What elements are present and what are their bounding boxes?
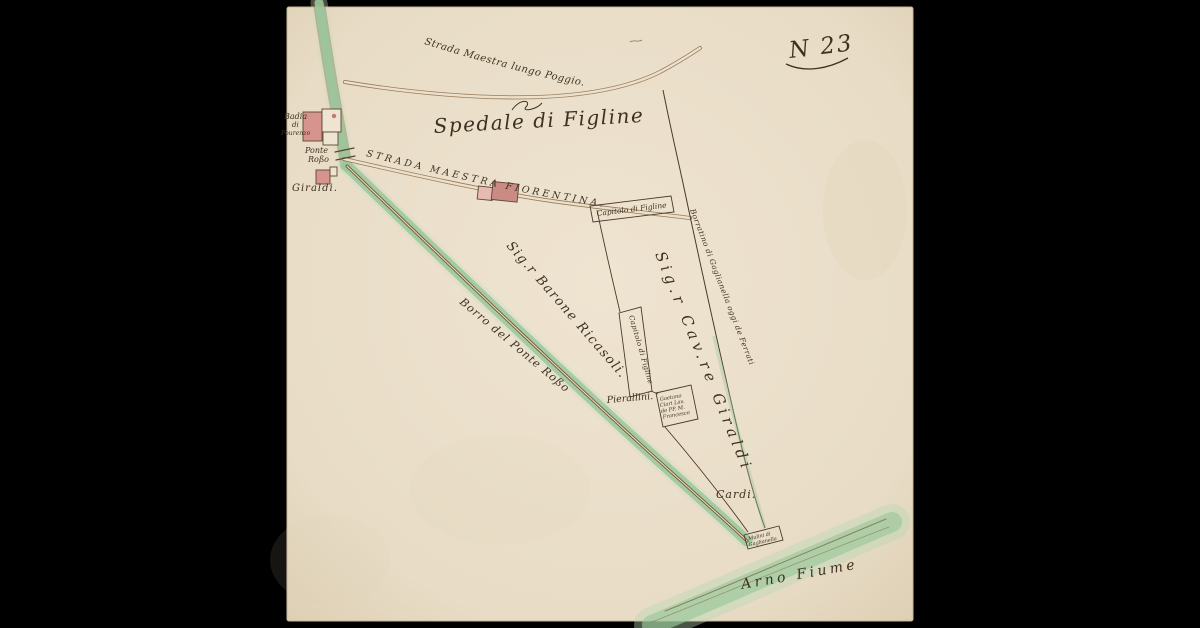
badia-label-line1: Badia	[283, 112, 307, 121]
badia-label-line3: Fourenzo	[280, 130, 311, 137]
badia-buildings	[303, 109, 341, 145]
paper-stain	[270, 515, 390, 605]
screenshot-canvas: N 23 Strada Maestra lungo Poggio. Spedal…	[0, 0, 1200, 628]
paper-stain	[410, 435, 590, 545]
ponte-rosso-line2: Roßo	[307, 155, 329, 164]
giraldi-house-label: Giraldi.	[292, 183, 338, 194]
cardi-label: Cardi.	[716, 488, 756, 501]
paper	[287, 7, 913, 621]
map-sheet	[270, 7, 913, 621]
ponte-rosso-line1: Ponte	[304, 146, 328, 155]
ponte-rosso-label: Ponte Roßo	[304, 146, 329, 164]
badia-label-line2: di	[292, 121, 299, 129]
paper-stain	[823, 140, 907, 280]
historic-map-figline: N 23 Strada Maestra lungo Poggio. Spedal…	[0, 0, 1200, 628]
